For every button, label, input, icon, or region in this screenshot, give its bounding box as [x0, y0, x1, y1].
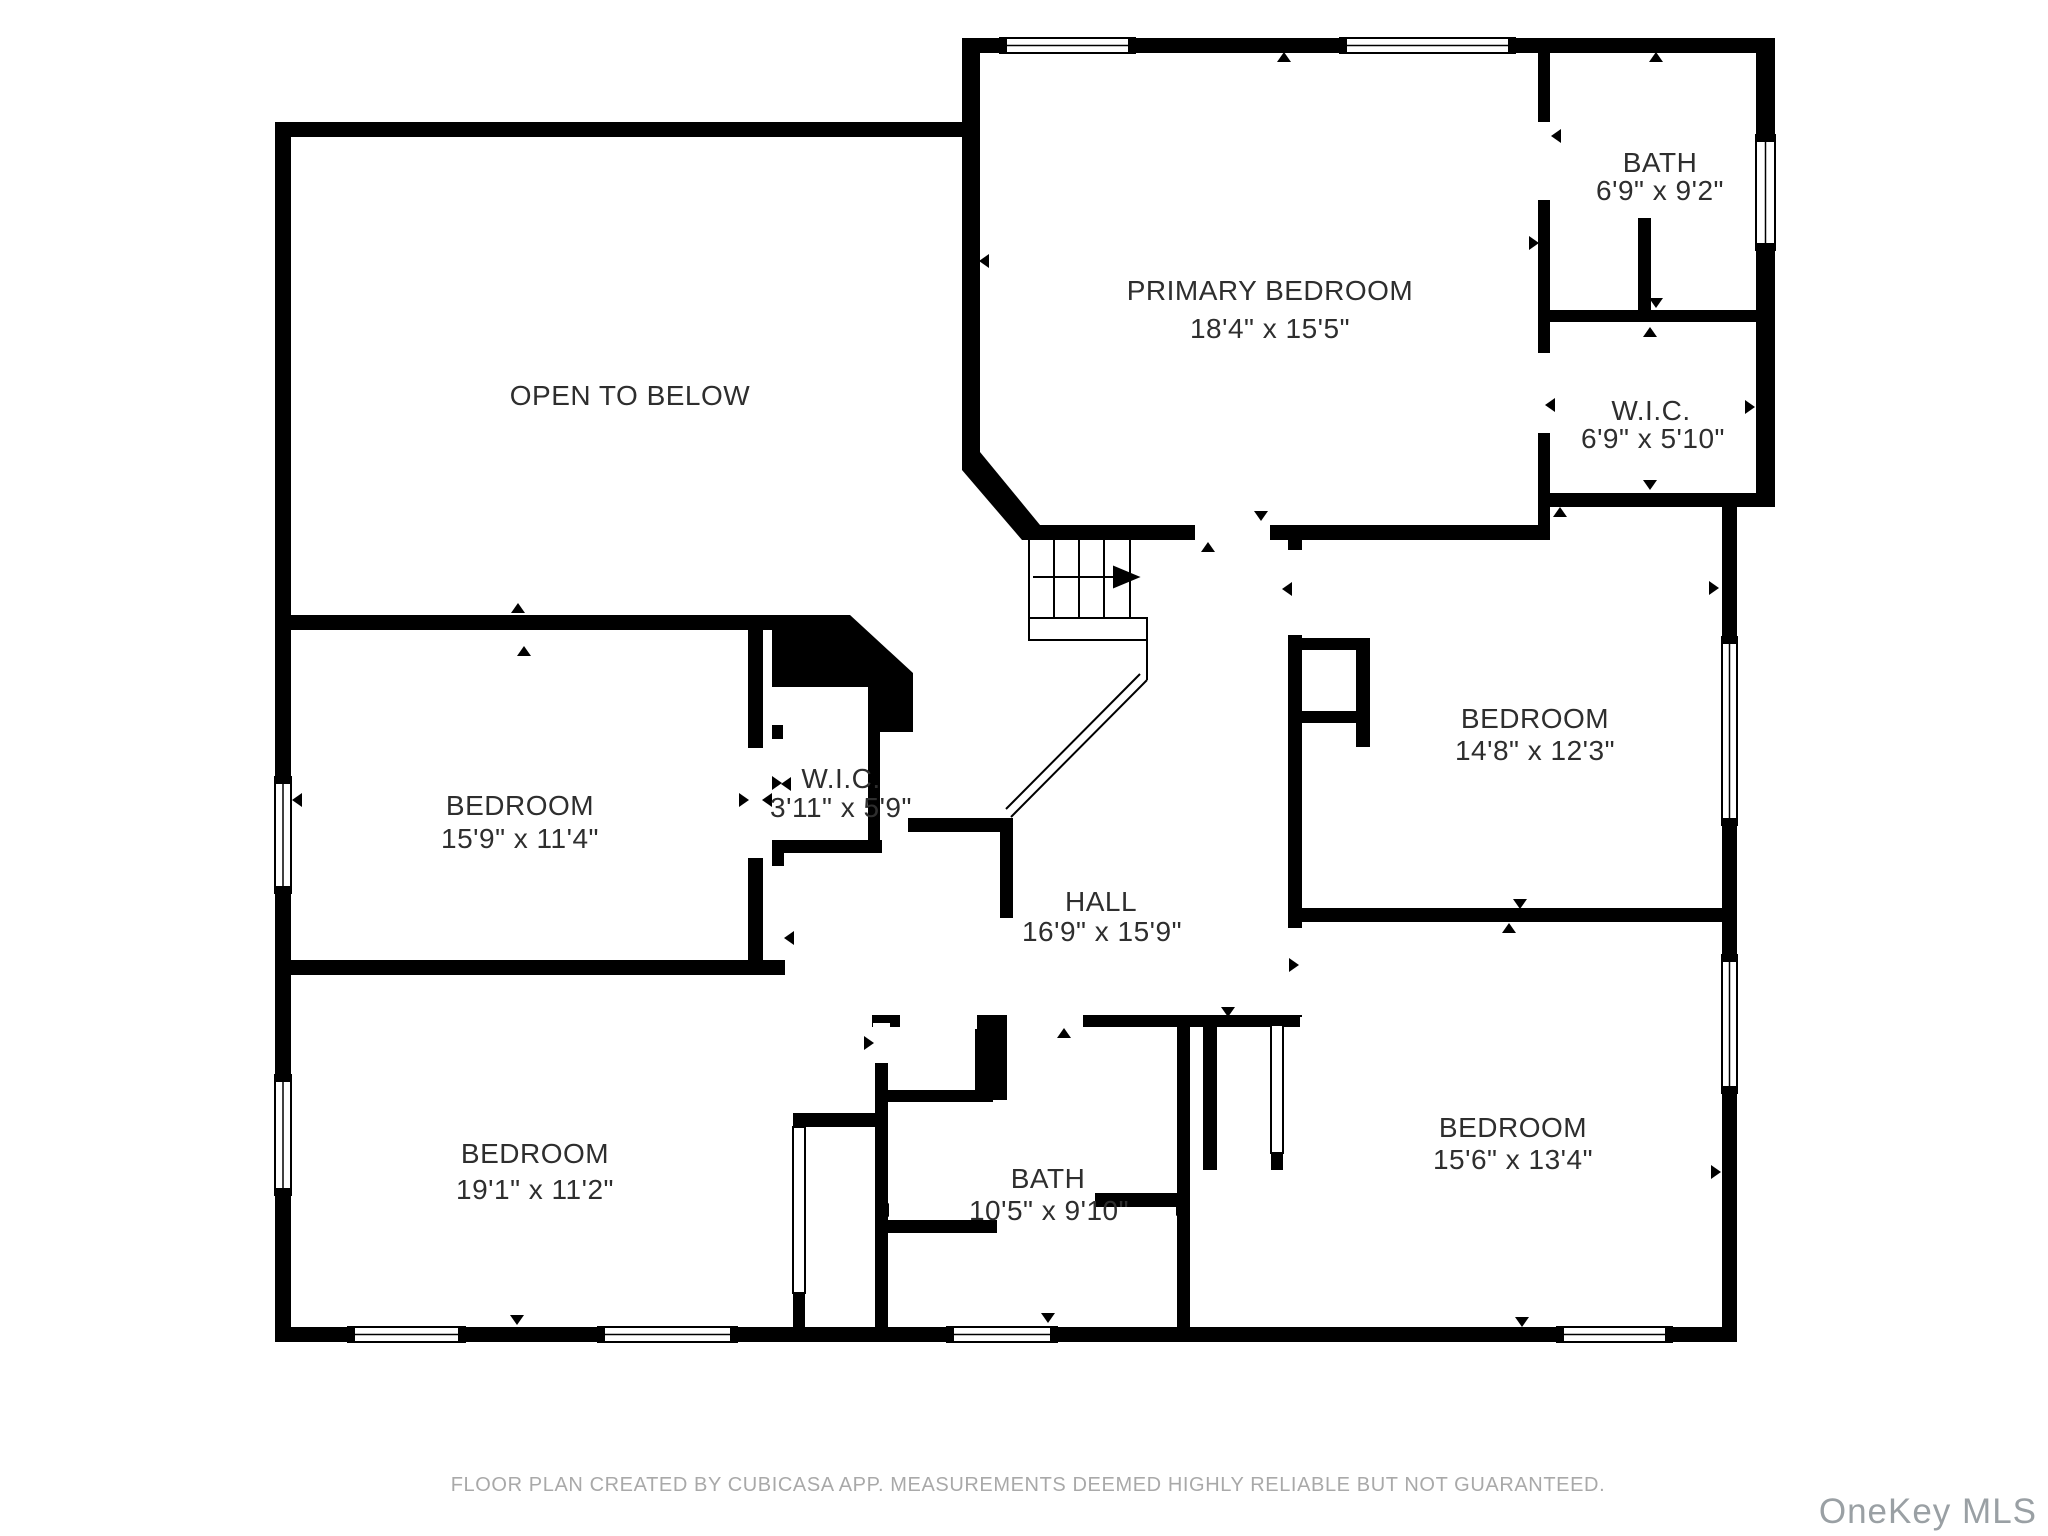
door-direction-marker-icon [1553, 507, 1567, 517]
door-direction-marker-icon [1277, 52, 1291, 62]
room-label-bedroom-right: BEDROOM [1461, 703, 1609, 734]
door-direction-marker-icon [1513, 899, 1527, 909]
room-label-bedroom-right-lower: BEDROOM [1439, 1112, 1587, 1143]
door-direction-marker-icon [511, 603, 525, 613]
onekey-mls-watermark: OneKey MLS [1819, 1492, 2037, 1531]
door-direction-marker-icon [1745, 400, 1755, 414]
room-label-bath-upper: BATH [1623, 147, 1698, 178]
door-direction-marker-icon [979, 254, 989, 268]
door-direction-marker-icon [1515, 1317, 1529, 1327]
room-label-hall: HALL [1065, 886, 1137, 917]
door-direction-marker-icon [1201, 542, 1215, 552]
door-direction-marker-icon [784, 931, 794, 945]
room-dims-bedroom-right-lower: 15'6" x 13'4" [1433, 1144, 1593, 1175]
door-direction-marker-icon [292, 793, 302, 807]
room-dims-hall: 16'9" x 15'9" [1022, 916, 1182, 947]
window-icon [1557, 1327, 1672, 1342]
room-label-open-to-below: OPEN TO BELOW [510, 380, 750, 411]
room-label-bath-lower: BATH [1011, 1163, 1086, 1194]
stairs-icon [1006, 540, 1147, 817]
room-label-bedroom-left-upper: BEDROOM [446, 790, 594, 821]
window-icon [348, 1327, 465, 1342]
room-dims-primary-bedroom: 18'4" x 15'5" [1190, 313, 1350, 344]
room-label-wic-upper: W.I.C. [1611, 395, 1690, 426]
window-icon [1000, 38, 1135, 53]
room-dims-wic-upper: 6'9" x 5'10" [1581, 423, 1725, 454]
door-direction-marker-icon [510, 1315, 524, 1325]
door-direction-marker-icon [864, 1036, 874, 1050]
window-icon [1722, 955, 1737, 1093]
door-direction-marker-icon [1649, 52, 1663, 62]
door-direction-marker-icon [1057, 1028, 1071, 1038]
room-label-wic-small: W.I.C. [801, 763, 880, 794]
door-direction-marker-icon [781, 777, 791, 791]
door-direction-marker-icon [1551, 129, 1561, 143]
room-label-primary-bedroom: PRIMARY BEDROOM [1127, 275, 1414, 306]
room-dims-bedroom-right: 14'8" x 12'3" [1455, 735, 1615, 766]
window-icon [1722, 637, 1737, 825]
room-dims-bedroom-left-upper: 15'9" x 11'4" [441, 823, 599, 854]
floor-plan: OPEN TO BELOW PRIMARY BEDROOM 18'4" x 15… [0, 0, 2048, 1536]
room-labels: OPEN TO BELOW PRIMARY BEDROOM 18'4" x 15… [441, 147, 1725, 1226]
door-direction-marker-icon [1709, 581, 1719, 595]
door-direction-marker-icon [1643, 327, 1657, 337]
door-direction-marker-icon [1643, 480, 1657, 490]
window-icon [1756, 135, 1775, 250]
room-label-bedroom-left-lower: BEDROOM [461, 1138, 609, 1169]
door-direction-marker-icon [1041, 1313, 1055, 1323]
window-icon [275, 1075, 291, 1195]
room-dims-bath-upper: 6'9" x 9'2" [1596, 175, 1724, 206]
door-direction-marker-icon [1649, 298, 1663, 308]
window-icon [275, 777, 291, 893]
window-icon [598, 1327, 737, 1342]
door-direction-marker-icon [517, 646, 531, 656]
door-direction-marker-icon [1254, 511, 1268, 521]
door-direction-marker-icon [772, 776, 782, 790]
door-direction-marker-icon [1529, 236, 1539, 250]
footer-note: FLOOR PLAN CREATED BY CUBICASA APP. MEAS… [451, 1474, 1606, 1496]
window-icon [1340, 38, 1515, 53]
floor-plan-page: OPEN TO BELOW PRIMARY BEDROOM 18'4" x 15… [0, 0, 2048, 1536]
door-direction-marker-icon [1711, 1165, 1721, 1179]
room-dims-wic-small: 3'11" x 5'9" [770, 792, 912, 823]
room-dims-bath-lower: 10'5" x 9'10" [969, 1195, 1129, 1226]
room-dims-bedroom-left-lower: 19'1" x 11'2" [456, 1174, 614, 1205]
door-direction-marker-icon [1502, 923, 1516, 933]
window-icon [947, 1327, 1057, 1342]
